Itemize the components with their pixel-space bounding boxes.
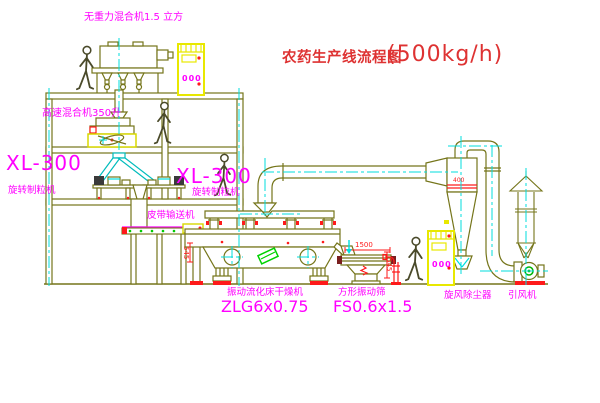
label-dryer-model: ZLG6x0.75 bbox=[221, 299, 309, 315]
cabinet-bottom-display: 000 bbox=[432, 261, 452, 269]
label-granulator-mid-name: 旋转制粒机 bbox=[192, 188, 240, 198]
cad-flow-diagram: 农药生产线流程图 (500kg/h) 无重力混合机1.5 立方 高速混合机350… bbox=[0, 0, 600, 403]
dim-sieve-length: 1500 bbox=[355, 242, 373, 249]
dim-dryer-feed: 545 bbox=[182, 246, 189, 259]
person-figure bbox=[77, 46, 93, 89]
label-high-speed-mixer: 高速混合机350升 bbox=[42, 109, 121, 119]
label-cyclone: 旋风除尘器 bbox=[444, 291, 492, 301]
feed-y-chute bbox=[96, 153, 155, 181]
person-figure bbox=[406, 237, 422, 280]
control-cabinet-bottom bbox=[428, 231, 454, 285]
granulator-left bbox=[93, 176, 135, 199]
cyclone-mark: 400 bbox=[453, 178, 464, 184]
control-cabinet-top bbox=[178, 44, 204, 95]
label-belt-conveyor: 皮带输送机 bbox=[147, 211, 195, 221]
label-granulator-left-model: XL-300 bbox=[6, 153, 82, 173]
label-sieve-model: FS0.6x1.5 bbox=[333, 299, 412, 315]
gravity-free-mixer bbox=[92, 42, 173, 112]
induced-draft-fan bbox=[514, 262, 545, 285]
label-granulator-mid-model: XL-300 bbox=[176, 166, 252, 186]
label-gravity-mixer: 无重力混合机1.5 立方 bbox=[84, 13, 183, 23]
granulator-discharge-duct bbox=[131, 185, 147, 227]
fluid-bed-dryer bbox=[183, 211, 349, 285]
exhaust-duct bbox=[254, 158, 447, 212]
dim-sieve-height: 545 bbox=[385, 258, 392, 271]
cabinet-top-display: 000 bbox=[182, 75, 202, 83]
drawing-title-capacity: (500kg/h) bbox=[387, 44, 503, 66]
label-fan: 引风机 bbox=[508, 291, 537, 301]
drawing-title: 农药生产线流程图 bbox=[282, 51, 402, 66]
label-granulator-left-name: 旋转制粒机 bbox=[8, 186, 56, 196]
